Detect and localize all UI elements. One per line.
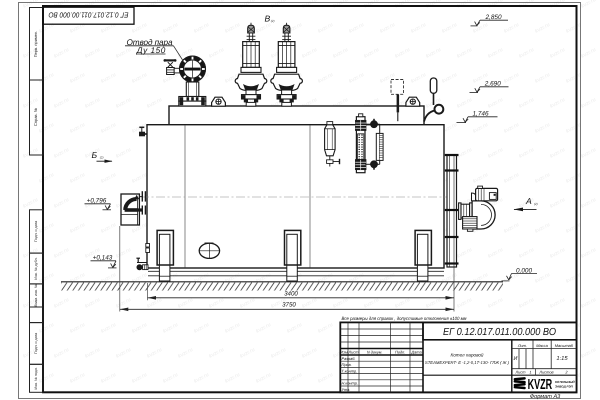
svg-text:kvzr.ru: kvzr.ru xyxy=(565,122,582,135)
svg-text:kvzr.ru: kvzr.ru xyxy=(518,97,535,110)
svg-text:kvzr.ru: kvzr.ru xyxy=(38,172,55,185)
svg-text:kvzr.ru: kvzr.ru xyxy=(177,347,194,360)
svg-text:Масштаб: Масштаб xyxy=(555,343,574,348)
svg-text:kvzr.ru: kvzr.ru xyxy=(565,222,582,235)
svg-text:kvzr.ru: kvzr.ru xyxy=(162,372,179,385)
svg-text:(2): (2) xyxy=(100,155,104,159)
svg-text:kvzr.ru: kvzr.ru xyxy=(100,172,117,185)
svg-text:kvzr.ru: kvzr.ru xyxy=(146,347,163,360)
svg-text:kvzr.ru: kvzr.ru xyxy=(348,72,365,85)
svg-text:kvzr.ru: kvzr.ru xyxy=(224,322,241,335)
svg-text:kvzr.ru: kvzr.ru xyxy=(69,72,86,85)
svg-text:kvzr.ru: kvzr.ru xyxy=(131,72,148,85)
svg-text:kvzr.ru: kvzr.ru xyxy=(84,297,101,310)
svg-text:kvzr.ru: kvzr.ru xyxy=(146,97,163,110)
svg-text:kvzr.ru: kvzr.ru xyxy=(379,72,396,85)
svg-text:kvzr.ru: kvzr.ru xyxy=(503,22,520,35)
svg-text:kvzr.ru: kvzr.ru xyxy=(549,147,566,160)
svg-text:kvzr.ru: kvzr.ru xyxy=(100,222,117,235)
svg-text:kvzr.ru: kvzr.ru xyxy=(38,222,55,235)
svg-text:STEAMEXPERT- Е -1,2-0,1Т-130-: STEAMEXPERT- Е -1,2-0,1Т-130- ГЛЖ ( Ж ) xyxy=(425,360,510,365)
svg-text:kvzr.ru: kvzr.ru xyxy=(53,197,70,210)
svg-text:kvzr.ru: kvzr.ru xyxy=(162,322,179,335)
svg-text:kvzr.ru: kvzr.ru xyxy=(534,72,551,85)
svg-text:kvzr.ru: kvzr.ru xyxy=(487,97,504,110)
svg-text:kvzr.ru: kvzr.ru xyxy=(580,247,597,260)
svg-text:kvzr.ru: kvzr.ru xyxy=(208,0,225,10)
svg-text:kvzr.ru: kvzr.ru xyxy=(363,0,380,10)
svg-text:Подп. и дата: Подп. и дата xyxy=(34,221,38,242)
svg-text:kvzr.ru: kvzr.ru xyxy=(456,147,473,160)
svg-text:Н.контр.: Н.контр. xyxy=(342,381,358,386)
svg-text:kvzr.ru: kvzr.ru xyxy=(53,347,70,360)
svg-text:kvzr.ru: kvzr.ru xyxy=(487,147,504,160)
svg-text:kvzr.ru: kvzr.ru xyxy=(286,372,303,385)
svg-text:kvzr.ru: kvzr.ru xyxy=(518,47,535,60)
svg-text:kvzr.ru: kvzr.ru xyxy=(115,0,132,10)
svg-text:kvzr.ru: kvzr.ru xyxy=(193,322,210,335)
svg-text:kvzr.ru: kvzr.ru xyxy=(472,122,489,135)
svg-text:kvzr.ru: kvzr.ru xyxy=(425,297,442,310)
svg-text:kvzr.ru: kvzr.ru xyxy=(410,22,427,35)
svg-text:kvzr.ru: kvzr.ru xyxy=(580,47,597,60)
svg-text:kvzr.ru: kvzr.ru xyxy=(441,22,458,35)
svg-text:ЕГ 0.12.017.011.00.000 ВО: ЕГ 0.12.017.011.00.000 ВО xyxy=(443,327,556,338)
svg-text:kvzr.ru: kvzr.ru xyxy=(270,347,287,360)
svg-text:kvzr.ru: kvzr.ru xyxy=(193,22,210,35)
svg-text:Разраб.: Разраб. xyxy=(342,356,356,361)
svg-text:kvzr.ru: kvzr.ru xyxy=(549,197,566,210)
svg-text:kvzr.ru: kvzr.ru xyxy=(53,0,70,10)
svg-text:kvzr.ru: kvzr.ru xyxy=(115,47,132,60)
svg-text:kvzr.ru: kvzr.ru xyxy=(317,322,334,335)
svg-text:kvzr.ru: kvzr.ru xyxy=(239,297,256,310)
svg-text:3750: 3750 xyxy=(282,302,296,309)
svg-text:kvzr.ru: kvzr.ru xyxy=(53,147,70,160)
svg-text:kvzr.ru: kvzr.ru xyxy=(472,172,489,185)
svg-text:kvzr.ru: kvzr.ru xyxy=(224,372,241,385)
svg-text:3400: 3400 xyxy=(284,290,298,297)
svg-text:Взам. инв. №: Взам. инв. № xyxy=(34,284,38,306)
svg-text:kvzr.ru: kvzr.ru xyxy=(69,122,86,135)
svg-text:kvzr.ru: kvzr.ru xyxy=(394,297,411,310)
svg-text:kvzr.ru: kvzr.ru xyxy=(503,172,520,185)
svg-text:kvzr.ru: kvzr.ru xyxy=(394,47,411,60)
svg-text:kvzr.ru: kvzr.ru xyxy=(22,147,39,160)
svg-text:kvzr.ru: kvzr.ru xyxy=(84,97,101,110)
svg-text:kvzr.ru: kvzr.ru xyxy=(441,72,458,85)
svg-text:kvzr.ru: kvzr.ru xyxy=(332,47,349,60)
svg-text:kvzr.ru: kvzr.ru xyxy=(208,347,225,360)
svg-text:kvzr.ru: kvzr.ru xyxy=(146,0,163,10)
svg-text:kvzr.ru: kvzr.ru xyxy=(518,247,535,260)
svg-text:kvzr.ru: kvzr.ru xyxy=(53,47,70,60)
svg-text:А: А xyxy=(525,196,532,206)
svg-text:Подп. и дата: Подп. и дата xyxy=(34,333,38,354)
svg-text:kvzr.ru: kvzr.ru xyxy=(255,22,272,35)
svg-text:В: В xyxy=(265,14,271,24)
svg-text:kvzr.ru: kvzr.ru xyxy=(518,147,535,160)
svg-text:kvzr.ru: kvzr.ru xyxy=(425,0,442,10)
svg-text:kvzr.ru: kvzr.ru xyxy=(534,22,551,35)
svg-text:kvzr.ru: kvzr.ru xyxy=(115,247,132,260)
svg-text:kvzr.ru: kvzr.ru xyxy=(53,297,70,310)
svg-text:kvzr.ru: kvzr.ru xyxy=(224,22,241,35)
svg-text:kvzr.ru: kvzr.ru xyxy=(487,0,504,10)
svg-text:kvzr.ru: kvzr.ru xyxy=(379,22,396,35)
svg-text:kvzr.ru: kvzr.ru xyxy=(580,147,597,160)
svg-text:kvzr.ru: kvzr.ru xyxy=(456,97,473,110)
svg-text:kvzr.ru: kvzr.ru xyxy=(503,72,520,85)
svg-text:kvzr.ru: kvzr.ru xyxy=(348,22,365,35)
svg-text:kvzr.ru: kvzr.ru xyxy=(580,297,597,310)
svg-text:kvzr.ru: kvzr.ru xyxy=(53,97,70,110)
svg-text:kvzr.ru: kvzr.ru xyxy=(534,122,551,135)
svg-text:kvzr.ru: kvzr.ru xyxy=(22,97,39,110)
svg-text:kvzr.ru: kvzr.ru xyxy=(239,347,256,360)
svg-text:kvzr.ru: kvzr.ru xyxy=(565,272,582,285)
svg-text:kvzr.ru: kvzr.ru xyxy=(193,372,210,385)
svg-text:kvzr.ru: kvzr.ru xyxy=(100,72,117,85)
svg-text:kvzr.ru: kvzr.ru xyxy=(286,322,303,335)
svg-text:kvzr.ru: kvzr.ru xyxy=(177,297,194,310)
svg-text:kvzr.ru: kvzr.ru xyxy=(363,297,380,310)
svg-text:kvzr.ru: kvzr.ru xyxy=(38,322,55,335)
svg-text:kvzr.ru: kvzr.ru xyxy=(115,297,132,310)
svg-text:Формат А3: Формат А3 xyxy=(530,394,561,400)
svg-text:kvzr.ru: kvzr.ru xyxy=(115,147,132,160)
svg-text:(2): (2) xyxy=(534,202,538,206)
svg-text:kvzr.ru: kvzr.ru xyxy=(162,22,179,35)
svg-text:kvzr.ru: kvzr.ru xyxy=(100,372,117,385)
svg-text:kvzr.ru: kvzr.ru xyxy=(549,297,566,310)
svg-text:Утв.: Утв. xyxy=(342,387,351,392)
svg-text:kvzr.ru: kvzr.ru xyxy=(549,247,566,260)
svg-text:kvzr.ru: kvzr.ru xyxy=(84,0,101,10)
svg-text:Б: Б xyxy=(92,150,98,160)
svg-text:kvzr.ru: kvzr.ru xyxy=(456,0,473,10)
svg-text:kvzr.ru: kvzr.ru xyxy=(456,47,473,60)
svg-text:kvzr.ru: kvzr.ru xyxy=(565,72,582,85)
svg-text:kvzr.ru: kvzr.ru xyxy=(487,297,504,310)
svg-text:1: 1 xyxy=(529,370,531,375)
svg-text:kvzr.ru: kvzr.ru xyxy=(534,222,551,235)
svg-text:Справ. №: Справ. № xyxy=(33,107,38,126)
svg-text:kvzr.ru: kvzr.ru xyxy=(580,197,597,210)
svg-text:Инв. № дубл.: Инв. № дубл. xyxy=(34,257,38,279)
svg-text:Дата: Дата xyxy=(410,349,422,354)
svg-text:Т.контр.: Т.контр. xyxy=(342,368,358,373)
svg-text:kvzr.ru: kvzr.ru xyxy=(487,47,504,60)
svg-text:kvzr.ru: kvzr.ru xyxy=(131,322,148,335)
svg-text:kvzr.ru: kvzr.ru xyxy=(580,97,597,110)
svg-text:kvzr.ru: kvzr.ru xyxy=(69,172,86,185)
svg-text:(2): (2) xyxy=(271,19,275,23)
svg-text:kvzr.ru: kvzr.ru xyxy=(69,372,86,385)
svg-text:И: И xyxy=(513,356,517,362)
svg-text:Масса: Масса xyxy=(536,343,548,348)
svg-text:kvzr.ru: kvzr.ru xyxy=(38,272,55,285)
svg-text:kvzr.ru: kvzr.ru xyxy=(301,297,318,310)
svg-text:kvzr.ru: kvzr.ru xyxy=(270,0,287,10)
svg-text:kvzr.ru: kvzr.ru xyxy=(208,297,225,310)
svg-text:kvzr.ru: kvzr.ru xyxy=(38,72,55,85)
svg-text:kvzr.ru: kvzr.ru xyxy=(332,297,349,310)
svg-text:kvzr.ru: kvzr.ru xyxy=(22,0,39,10)
svg-text:kvzr.ru: kvzr.ru xyxy=(208,47,225,60)
svg-text:kvzr.ru: kvzr.ru xyxy=(518,0,535,10)
svg-text:kvzr.ru: kvzr.ru xyxy=(580,347,597,360)
svg-text:ЗАВОД РЭП: ЗАВОД РЭП xyxy=(555,385,574,389)
svg-text:КОТЕЛЬНЫЙ: КОТЕЛЬНЫЙ xyxy=(555,380,575,384)
svg-text:Перв. примен.: Перв. примен. xyxy=(33,31,38,58)
svg-text:kvzr.ru: kvzr.ru xyxy=(518,297,535,310)
svg-text:kvzr.ru: kvzr.ru xyxy=(239,0,256,10)
svg-text:kvzr.ru: kvzr.ru xyxy=(131,372,148,385)
svg-text:kvzr.ru: kvzr.ru xyxy=(425,47,442,60)
svg-text:kvzr.ru: kvzr.ru xyxy=(38,122,55,135)
svg-text:kvzr.ru: kvzr.ru xyxy=(410,72,427,85)
svg-text:Котел паровой: Котел паровой xyxy=(451,353,484,358)
svg-text:kvzr.ru: kvzr.ru xyxy=(394,0,411,10)
svg-text:Лист: Лист xyxy=(347,349,359,354)
svg-text:kvzr.ru: kvzr.ru xyxy=(317,372,334,385)
svg-text:kvzr.ru: kvzr.ru xyxy=(301,47,318,60)
svg-text:kvzr.ru: kvzr.ru xyxy=(534,172,551,185)
svg-text:kvzr.ru: kvzr.ru xyxy=(332,0,349,10)
svg-text:Лит.: Лит. xyxy=(517,343,527,348)
svg-text:kvzr.ru: kvzr.ru xyxy=(177,0,194,10)
svg-text:kvzr.ru: kvzr.ru xyxy=(69,222,86,235)
svg-text:kvzr.ru: kvzr.ru xyxy=(53,247,70,260)
svg-text:kvzr.ru: kvzr.ru xyxy=(115,347,132,360)
svg-text:kvzr.ru: kvzr.ru xyxy=(549,97,566,110)
svg-text:ЕГ 0.12.017.011.00.000 ВО: ЕГ 0.12.017.011.00.000 ВО xyxy=(48,11,128,20)
svg-text:kvzr.ru: kvzr.ru xyxy=(131,172,148,185)
svg-text:kvzr.ru: kvzr.ru xyxy=(115,97,132,110)
svg-text:kvzr.ru: kvzr.ru xyxy=(565,172,582,185)
svg-text:kvzr.ru: kvzr.ru xyxy=(100,322,117,335)
svg-text:Изм: Изм xyxy=(340,349,348,354)
svg-text:Все размеры для справок , допу: Все размеры для справок , допустимые отк… xyxy=(342,316,468,321)
svg-text:N докум.: N докум. xyxy=(367,349,383,354)
svg-text:kvzr.ru: kvzr.ru xyxy=(503,222,520,235)
svg-text:kvzr.ru: kvzr.ru xyxy=(549,0,566,10)
svg-text:kvzr.ru: kvzr.ru xyxy=(255,322,272,335)
svg-text:kvzr.ru: kvzr.ru xyxy=(317,22,334,35)
svg-text:Инв. № подл.: Инв. № подл. xyxy=(34,367,38,389)
svg-text:Подп.: Подп. xyxy=(395,349,405,354)
svg-text:kvzr.ru: kvzr.ru xyxy=(580,0,597,10)
svg-text:kvzr.ru: kvzr.ru xyxy=(456,247,473,260)
svg-text:kvzr.ru: kvzr.ru xyxy=(363,47,380,60)
svg-text:kvzr.ru: kvzr.ru xyxy=(487,247,504,260)
svg-text:kvzr.ru: kvzr.ru xyxy=(69,322,86,335)
svg-text:kvzr.ru: kvzr.ru xyxy=(84,347,101,360)
svg-text:kvzr.ru: kvzr.ru xyxy=(38,372,55,385)
svg-text:kvzr.ru: kvzr.ru xyxy=(301,347,318,360)
svg-text:kvzr.ru: kvzr.ru xyxy=(22,197,39,210)
svg-text:kvzr.ru: kvzr.ru xyxy=(255,372,272,385)
svg-text:kvzr.ru: kvzr.ru xyxy=(317,72,334,85)
svg-text:Лист: Лист xyxy=(514,370,526,375)
svg-text:kvzr.ru: kvzr.ru xyxy=(565,22,582,35)
svg-text:Листов: Листов xyxy=(538,370,553,375)
svg-text:Пров.: Пров. xyxy=(342,362,352,367)
svg-text:kvzr.ru: kvzr.ru xyxy=(456,297,473,310)
svg-text:KVZR: KVZR xyxy=(528,377,553,393)
svg-text:kvzr.ru: kvzr.ru xyxy=(549,47,566,60)
svg-text:kvzr.ru: kvzr.ru xyxy=(100,122,117,135)
svg-text:kvzr.ru: kvzr.ru xyxy=(472,22,489,35)
svg-text:kvzr.ru: kvzr.ru xyxy=(301,0,318,10)
svg-text:kvzr.ru: kvzr.ru xyxy=(84,47,101,60)
svg-text:1:15: 1:15 xyxy=(556,356,568,362)
svg-text:kvzr.ru: kvzr.ru xyxy=(503,122,520,135)
